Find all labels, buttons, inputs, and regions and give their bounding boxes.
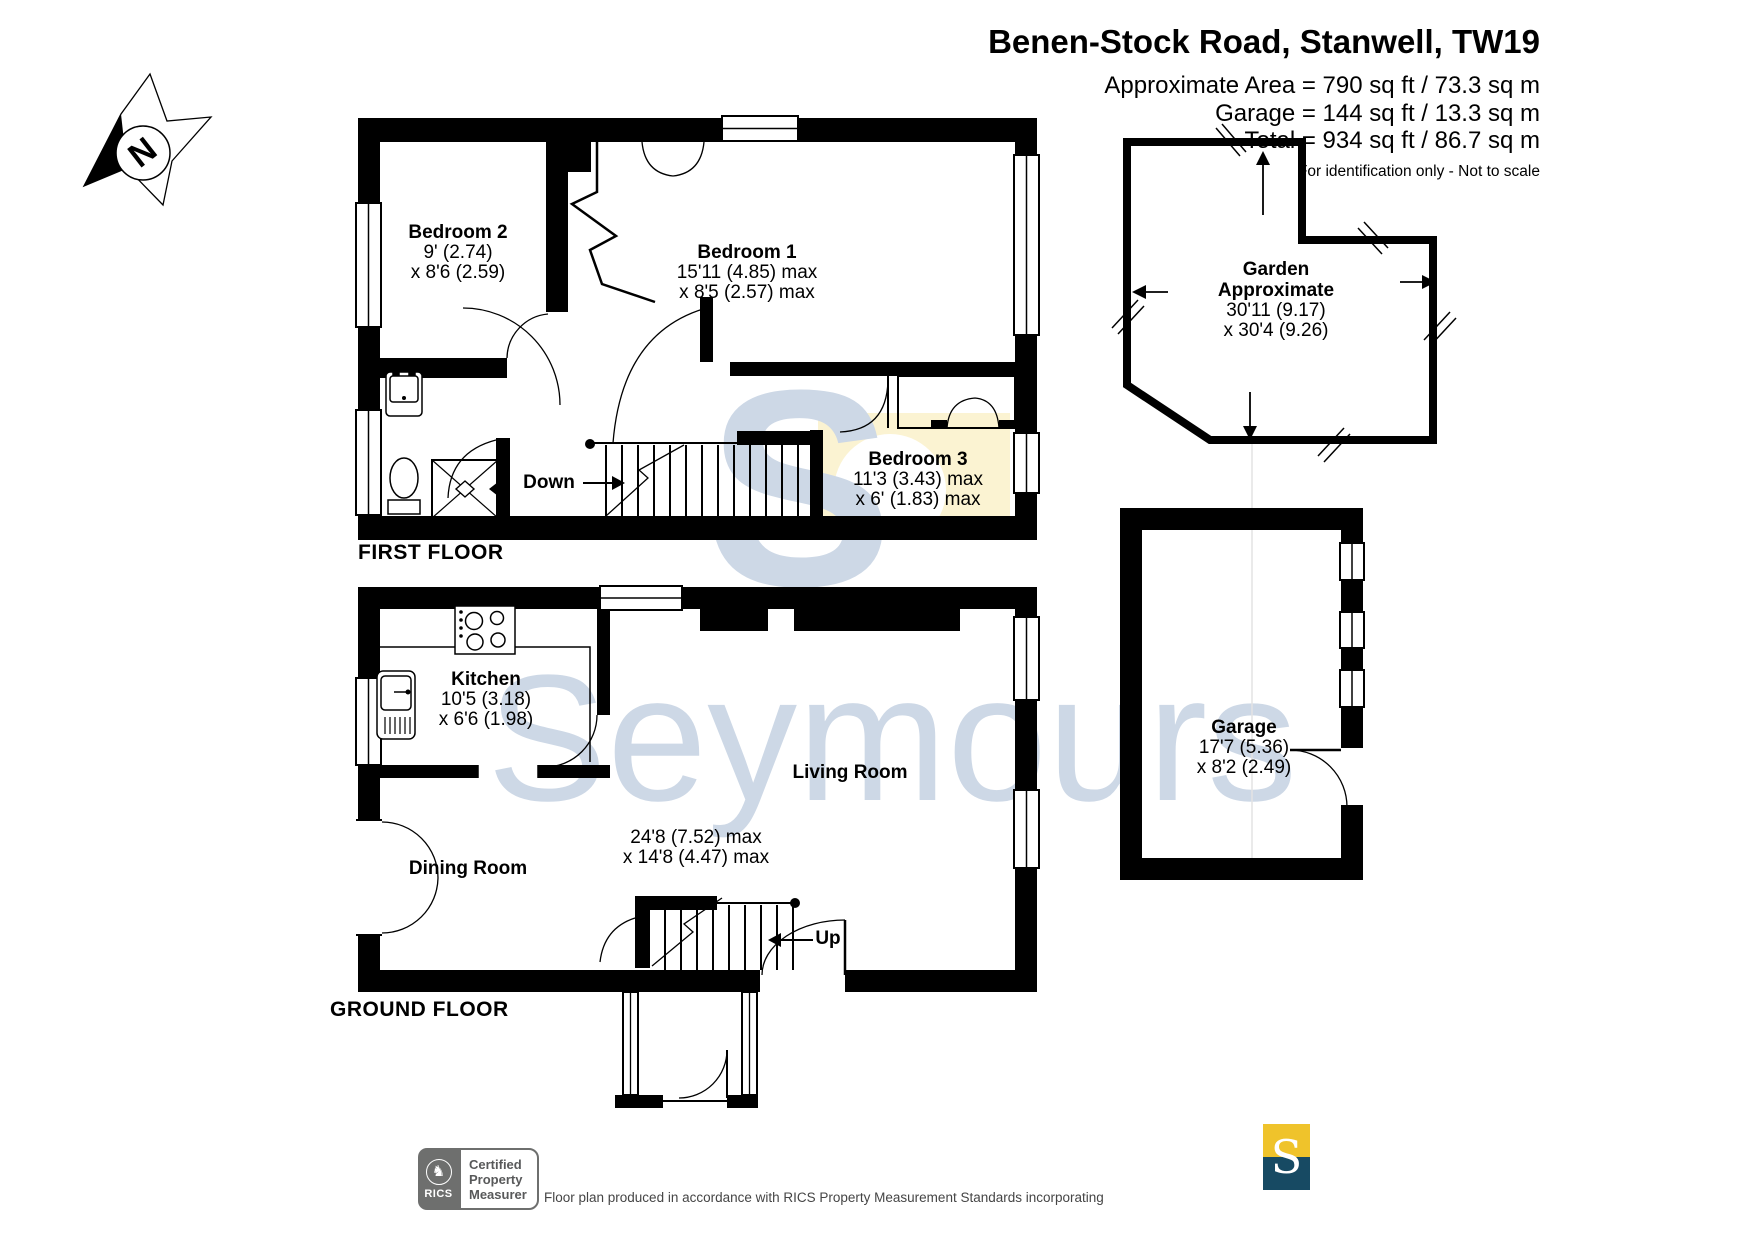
room-name: Approximate xyxy=(1218,280,1334,301)
garage-windows xyxy=(1340,543,1364,707)
hob-icon xyxy=(455,606,515,654)
rics-lion-icon: ♞ xyxy=(426,1159,452,1185)
garden-label: Garden Approximate 30'11 (9.17) x 30'4 (… xyxy=(1218,259,1334,341)
room-dim: x 8'2 (2.49) xyxy=(1197,758,1291,778)
room-dim: 30'11 (9.17) xyxy=(1218,301,1334,321)
room-dim: 11'3 (3.43) max xyxy=(853,470,983,490)
room-dim: x 8'6 (2.59) xyxy=(408,263,507,283)
kitchen-sink-icon xyxy=(377,671,415,739)
identification-note: For identification only - Not to scale xyxy=(988,163,1540,181)
area-line-garage: Garage = 144 sq ft / 13.3 sq m xyxy=(988,100,1540,128)
first-floor-label: FIRST FLOOR xyxy=(358,541,504,565)
page-title: Benen-Stock Road, Stanwell, TW19 xyxy=(988,24,1540,60)
room-dim: x 6' (1.83) max xyxy=(853,490,983,510)
room-label-dining-room: Dining Room xyxy=(409,858,527,879)
room-name: Living Room xyxy=(792,762,907,783)
shower-icon xyxy=(432,460,498,518)
room-label-living-room: Living Room xyxy=(792,762,907,783)
cert-line: Measurer xyxy=(469,1187,537,1202)
porch xyxy=(615,992,758,1108)
rics-logo: ♞ RICS xyxy=(418,1148,459,1210)
certified-property-measurer-badge: Certified Property Measurer xyxy=(459,1148,539,1210)
rics-brand-text: RICS xyxy=(424,1188,452,1200)
ground-floor-label: GROUND FLOOR xyxy=(330,998,509,1022)
header: Benen-Stock Road, Stanwell, TW19 Approxi… xyxy=(988,24,1540,181)
room-name: Garden xyxy=(1218,259,1334,280)
room-dim: x 8'5 (2.57) max xyxy=(677,283,818,303)
garage-door xyxy=(1290,750,1347,807)
room-name: Bedroom 1 xyxy=(677,242,818,263)
room-dim: x 30'4 (9.26) xyxy=(1218,321,1334,341)
room-label-bedroom-3: Bedroom 3 11'3 (3.43) max x 6' (1.83) ma… xyxy=(853,449,983,510)
area-summary: Approximate Area = 790 sq ft / 73.3 sq m… xyxy=(988,72,1540,155)
room-name: Bedroom 3 xyxy=(853,449,983,470)
floorplan-page: S Seymours xyxy=(0,0,1755,1241)
room-name: Garage xyxy=(1197,717,1291,738)
stairs-down-label: Down xyxy=(523,472,575,494)
room-label-bedroom-2: Bedroom 2 9' (2.74) x 8'6 (2.59) xyxy=(408,222,507,283)
room-dim: 10'5 (3.18) xyxy=(439,690,533,710)
bathroom-sink-icon xyxy=(386,367,422,416)
cert-line: Property xyxy=(469,1172,537,1187)
room-dim: x 14'8 (4.47) max xyxy=(623,848,769,868)
credit-text: Floor plan produced in accordance with R… xyxy=(544,1150,1104,1241)
area-line-total: Total = 934 sq ft / 86.7 sq m xyxy=(988,127,1540,155)
room-dim: 9' (2.74) xyxy=(408,243,507,263)
room-dim: 15'11 (4.85) max xyxy=(677,263,818,283)
floor-plan-drawing: S Seymours xyxy=(0,0,1755,1241)
room-dim: x 6'6 (1.98) xyxy=(439,710,533,730)
room-label-bedroom-1: Bedroom 1 15'11 (4.85) max x 8'5 (2.57) … xyxy=(677,242,818,303)
room-label-kitchen: Kitchen 10'5 (3.18) x 6'6 (1.98) xyxy=(439,669,533,730)
down-arrow-icon xyxy=(583,476,625,490)
open-plan-dimensions: 24'8 (7.52) max x 14'8 (4.47) max xyxy=(623,828,769,868)
room-name: Dining Room xyxy=(409,858,527,879)
seymours-logo: S xyxy=(1263,1124,1310,1190)
room-name: Kitchen xyxy=(439,669,533,690)
room-name: Bedroom 2 xyxy=(408,222,507,243)
room-dim: 17'7 (5.36) xyxy=(1197,738,1291,758)
stairs-first-floor xyxy=(585,439,798,516)
garage-label: Garage 17'7 (5.36) x 8'2 (2.49) xyxy=(1197,717,1291,778)
stairs-up-label: Up xyxy=(815,928,840,950)
credit-line: Floor plan produced in accordance with R… xyxy=(544,1188,1104,1207)
area-line-total-house: Approximate Area = 790 sq ft / 73.3 sq m xyxy=(988,72,1540,100)
cert-line: Certified xyxy=(469,1157,537,1172)
seymours-logo-letter: S xyxy=(1263,1124,1310,1190)
room-dim: 24'8 (7.52) max xyxy=(623,828,769,848)
toilet-icon xyxy=(388,458,420,514)
